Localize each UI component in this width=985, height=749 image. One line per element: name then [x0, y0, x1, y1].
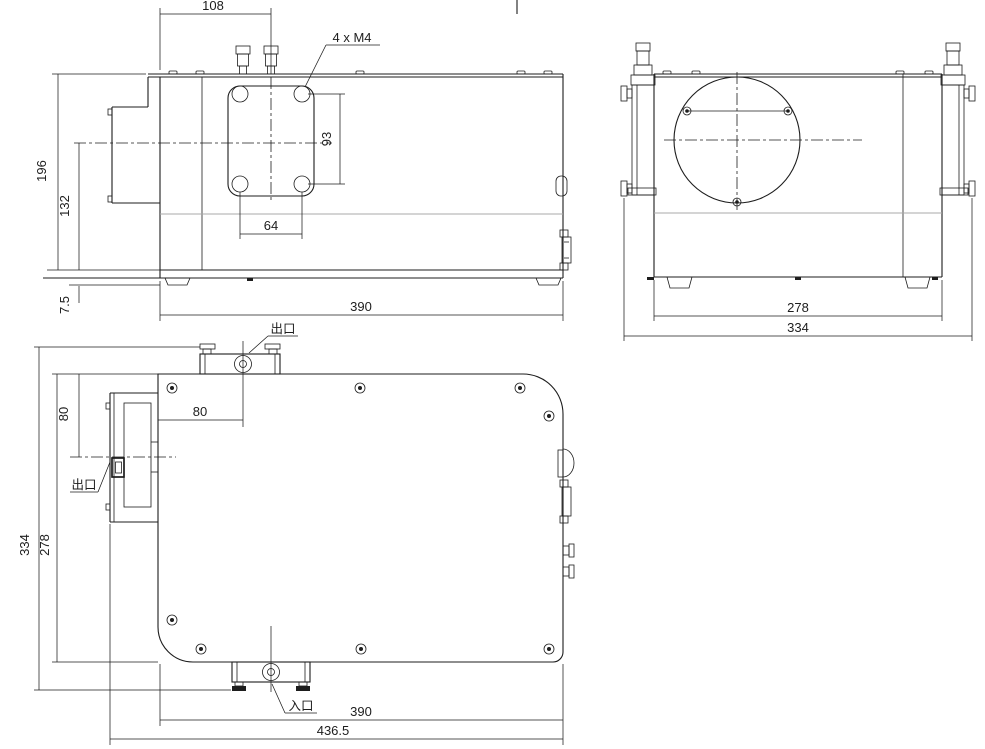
outlet-top-callout: 出口 — [249, 321, 298, 353]
outlet-side-label: 出口 — [71, 477, 96, 492]
front-view: 108 4 x M4 93 64 196 132 — [34, 0, 571, 321]
outlet-top-label: 出口 — [270, 321, 295, 336]
side-feet — [647, 277, 938, 288]
m4-hole-bottom-left — [232, 176, 248, 192]
m4-hole-top-left — [232, 86, 248, 102]
engineering-drawing-canvas: 108 4 x M4 93 64 196 132 — [0, 0, 985, 749]
dim-axis-height: 132 — [57, 195, 72, 217]
top-plate-outline — [158, 374, 563, 662]
dim-top-overall-depth: 334 — [17, 534, 32, 556]
dim-overall-height: 196 — [34, 160, 49, 182]
dim-outlet-offset-vertical: 80 — [56, 407, 71, 421]
dim-outlet-offset-horizontal: 80 — [193, 404, 207, 419]
inlet-callout: 入口 — [272, 684, 317, 713]
front-left-bracket — [108, 77, 160, 203]
drawing-sheet: 108 4 x M4 93 64 196 132 — [0, 0, 985, 749]
dim-hole-spacing-horizontal: 64 — [264, 218, 278, 233]
dim-side-body-width: 278 — [787, 300, 809, 315]
side-view: 278 334 — [621, 43, 975, 341]
side-left-manifold — [621, 43, 656, 196]
front-dimensions: 108 4 x M4 93 64 196 132 — [34, 0, 563, 321]
side-body-outline — [654, 74, 942, 277]
dim-foot-height: 7.5 — [57, 296, 72, 314]
dim-hole-spacing-vertical: 93 — [319, 132, 334, 146]
m4-hole-top-right — [294, 86, 310, 102]
side-dimensions: 278 334 — [624, 198, 972, 341]
outlet-side-callout: 出口 — [70, 462, 110, 492]
dim-top-body-depth: 278 — [37, 534, 52, 556]
indicator-oval — [556, 176, 567, 196]
inlet-label: 入口 — [288, 698, 313, 713]
dome-connector — [563, 449, 574, 477]
thread-note-leader — [305, 45, 326, 87]
top-cover-screws — [167, 383, 554, 654]
front-feet — [165, 278, 561, 285]
top-dimensions: 80 80 334 278 390 436.5 — [17, 347, 563, 745]
thread-note-label: 4 x M4 — [332, 30, 371, 45]
top-view: 出口 出口 入口 80 80 — [17, 321, 574, 745]
outlet-port-block — [200, 344, 280, 374]
side-right-manifold — [940, 43, 975, 196]
m4-hole-bottom-right — [294, 176, 310, 192]
dim-top-overall-width: 436.5 — [317, 723, 350, 738]
coolant-valve-fitting-left — [236, 46, 250, 74]
top-right-edge-connectors — [558, 449, 574, 578]
dim-front-top-width: 108 — [202, 0, 224, 13]
dim-front-overall-width: 390 — [350, 299, 372, 314]
dim-top-body-width: 390 — [350, 704, 372, 719]
dim-side-overall-width: 334 — [787, 320, 809, 335]
